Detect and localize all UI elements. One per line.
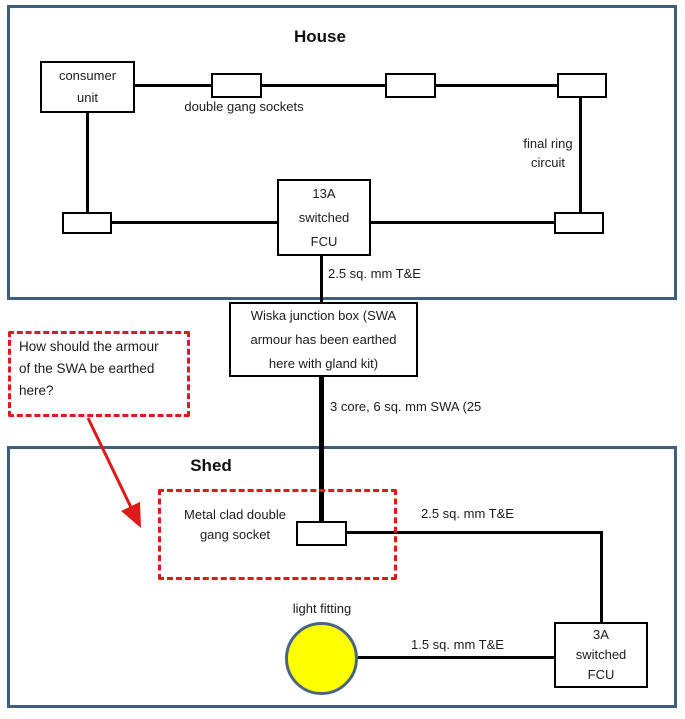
wiska-junction-box: Wiska junction box (SWA armour has been … xyxy=(229,302,418,377)
socket-box-5 xyxy=(554,212,604,234)
shed-socket-box xyxy=(296,521,347,546)
swa-cable-label: 3 core, 6 sq. mm SWA (25 xyxy=(330,399,481,415)
lighting-te-cable-label: 1.5 sq. mm T&E xyxy=(411,637,504,653)
wire-consumer-unit-drop xyxy=(86,113,89,213)
wire-socket-to-fcu-vertical xyxy=(600,531,603,622)
wire-fcu-to-junction xyxy=(320,255,323,303)
shed-title: Shed xyxy=(161,456,261,476)
socket-box-4 xyxy=(62,212,112,234)
te-cable-label-house: 2.5 sq. mm T&E xyxy=(328,266,421,282)
metal-clad-socket-label: Metal clad double gang socket xyxy=(166,505,304,545)
final-ring-circuit-label: final ring circuit xyxy=(508,134,588,172)
te-cable-label-shed: 2.5 sq. mm T&E xyxy=(421,506,514,522)
question-annotation-text: How should the armour of the SWA be eart… xyxy=(19,336,187,402)
consumer-unit-box: consumer unit xyxy=(40,61,135,113)
fcu-13a-box: 13A switched FCU xyxy=(277,179,371,256)
wire-ring-top xyxy=(135,84,580,87)
double-gang-sockets-label: double gang sockets xyxy=(170,99,318,115)
arrow-icon xyxy=(75,412,160,537)
socket-box-1 xyxy=(211,73,262,98)
light-fitting-label: light fitting xyxy=(270,601,374,617)
wire-ring-bottom-left xyxy=(112,221,279,224)
wiring-diagram-canvas: House consumer unit double gang sockets … xyxy=(0,0,685,719)
wire-ring-bottom-right xyxy=(369,221,556,224)
fcu-3a-box: 3A switched FCU xyxy=(554,622,648,688)
house-title: House xyxy=(270,27,370,47)
socket-box-3 xyxy=(557,73,607,98)
wire-light-to-fcu xyxy=(356,656,554,659)
socket-box-2 xyxy=(385,73,436,98)
light-fitting-circle xyxy=(285,622,358,695)
